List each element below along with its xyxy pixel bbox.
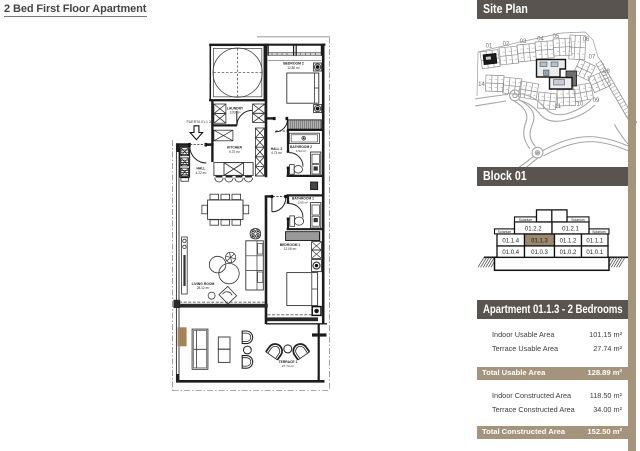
svg-text:Solarium: Solarium <box>498 230 512 234</box>
svg-text:06: 06 <box>583 37 590 43</box>
svg-text:9.37 m²: 9.37 m² <box>229 150 240 154</box>
svg-text:01: 01 <box>486 44 493 50</box>
svg-text:01.2.1: 01.2.1 <box>562 226 579 232</box>
svg-text:01.1.3: 01.1.3 <box>531 238 548 244</box>
svg-text:09: 09 <box>593 98 600 104</box>
svg-text:11: 11 <box>555 104 562 110</box>
svg-text:01.0.4: 01.0.4 <box>502 250 519 256</box>
svg-text:01.2.2: 01.2.2 <box>525 226 542 232</box>
svg-text:01.0.3: 01.0.3 <box>531 250 548 256</box>
svg-text:01.1.1: 01.1.1 <box>586 238 603 244</box>
svg-text:12.05 m²: 12.05 m² <box>284 247 297 251</box>
svg-text:14: 14 <box>478 82 485 88</box>
svg-text:27.74 m²: 27.74 m² <box>282 364 294 368</box>
svg-text:01.0.1: 01.0.1 <box>586 250 603 256</box>
svg-text:4.22 m²: 4.22 m² <box>196 171 207 175</box>
svg-text:PUERTA 01.1.3: PUERTA 01.1.3 <box>187 120 211 124</box>
svg-text:03: 03 <box>520 39 527 45</box>
svg-text:07: 07 <box>589 55 596 61</box>
svg-text:10: 10 <box>577 102 584 108</box>
svg-text:04: 04 <box>537 37 544 43</box>
svg-text:01.1.2: 01.1.2 <box>560 238 577 244</box>
svg-text:01.0.2: 01.0.2 <box>560 250 577 256</box>
svg-text:08: 08 <box>603 69 610 75</box>
svg-text:3.93 m²: 3.93 m² <box>230 111 241 115</box>
svg-text:02: 02 <box>503 42 510 48</box>
svg-text:4.94 m²: 4.94 m² <box>296 149 307 153</box>
svg-text:Solarium: Solarium <box>592 230 606 234</box>
svg-text:5.05 m²: 5.05 m² <box>298 200 309 204</box>
svg-text:Solarium: Solarium <box>519 218 533 222</box>
svg-text:28.12 m²: 28.12 m² <box>197 286 210 290</box>
svg-text:Solarium: Solarium <box>571 218 585 222</box>
svg-text:4.73 m²: 4.73 m² <box>271 151 282 155</box>
svg-text:01.1.4: 01.1.4 <box>502 238 519 244</box>
svg-text:05: 05 <box>553 34 560 40</box>
svg-text:12.80 m²: 12.80 m² <box>287 66 300 70</box>
